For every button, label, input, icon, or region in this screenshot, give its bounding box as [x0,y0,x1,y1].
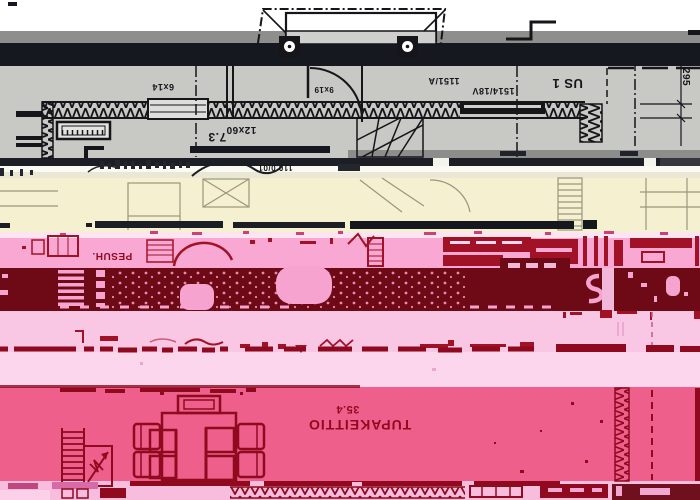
band-plan-grayscale [0,66,700,158]
label-window-code-b: 1151/A [428,76,460,85]
label-lintel-b: 6x14 [152,82,174,91]
band-pink-pale [0,352,700,387]
glitch-bar-dim [660,158,700,166]
label-wall-type: US 1 [552,77,583,90]
band-black-strip [0,43,700,66]
label-window-code-a: 1514/18V [472,86,515,95]
label-lintel: 12x60 [226,124,256,134]
band-gray-strip [0,31,700,43]
band-white-margin [0,0,700,31]
label-room-main: TUPAKEITTIO [308,418,411,432]
glitch-bar-gap [644,158,656,166]
label-area-small: 7.3 [208,131,226,143]
label-door-code: 9x19 [314,85,334,93]
band-maroon-glitch [0,268,700,311]
band-gray-sub [348,150,700,158]
band-rose [0,387,700,481]
glitch-bar-gap [433,158,449,166]
band-cream [0,178,700,232]
glitched-floorplan-scan: 6x14 9x19 12x60 7.3 1151/A 1514/18V US 1… [0,0,700,500]
label-room-pesuh: PESUH. [92,250,132,260]
band-glitch-bar [0,158,700,166]
label-elevation: 110.0/01 [258,163,293,171]
label-room-main-area: 35.4 [336,403,359,414]
band-bottom-strip [0,481,700,500]
label-dim-right: 295 [680,68,690,86]
band-pink-mid [0,311,700,352]
